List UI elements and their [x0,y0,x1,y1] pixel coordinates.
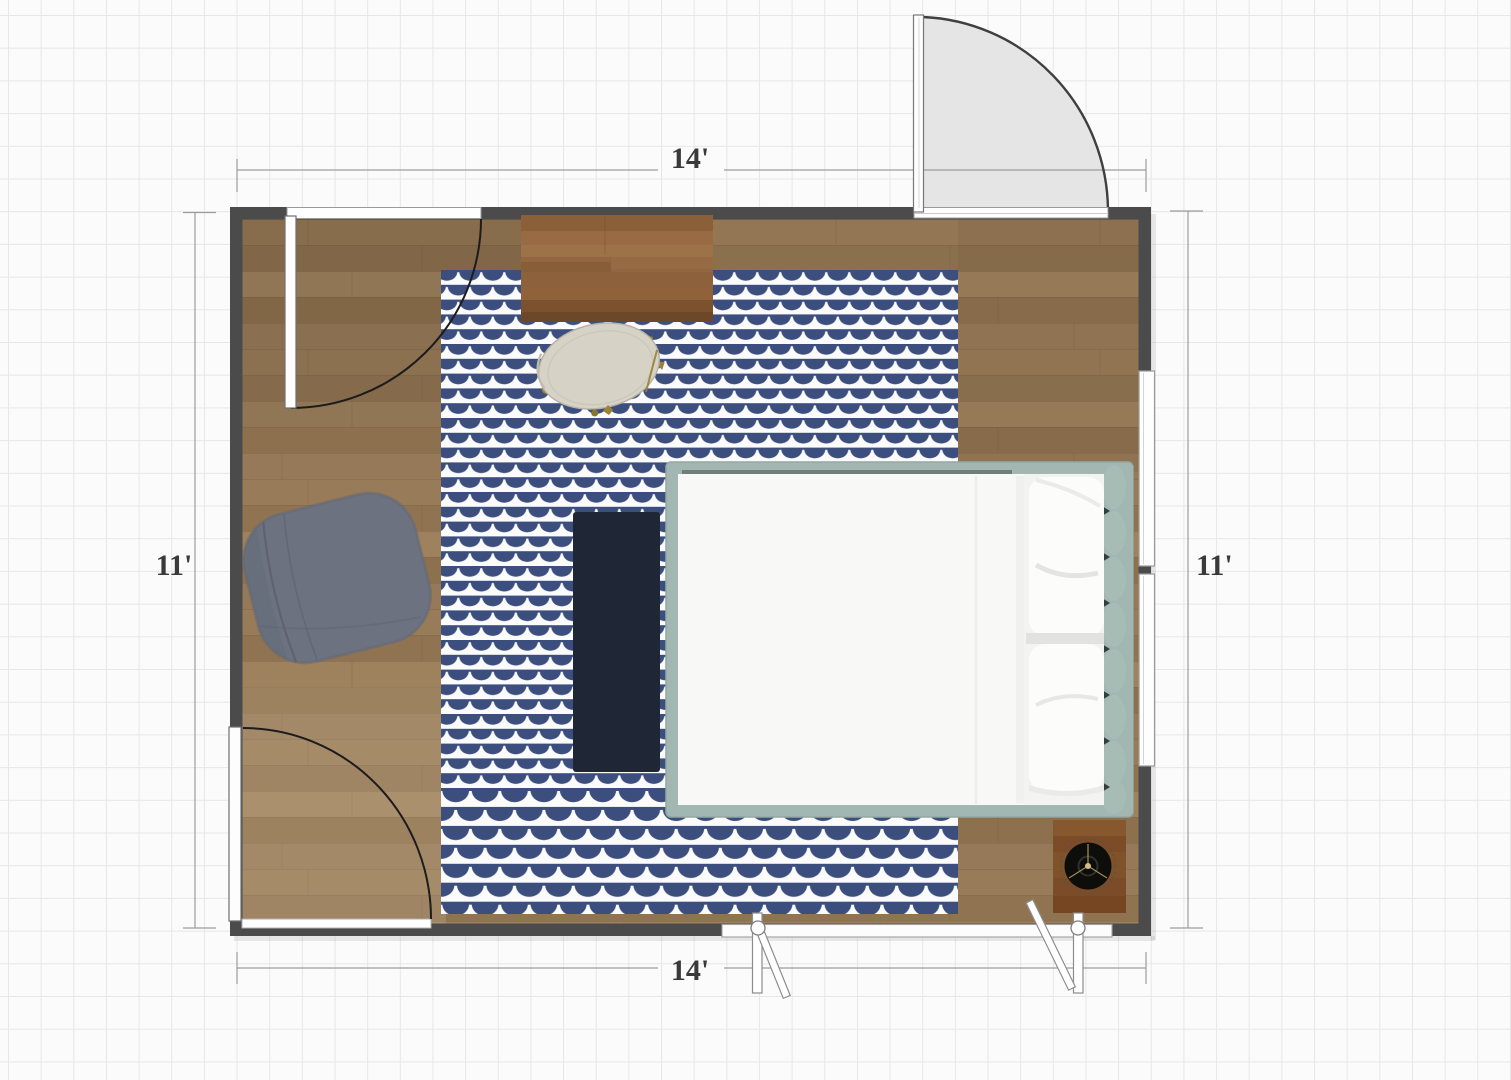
svg-text:11': 11' [156,549,193,582]
svg-text:14': 14' [671,142,709,175]
svg-text:11': 11' [1196,549,1233,582]
svg-text:14': 14' [671,954,709,987]
